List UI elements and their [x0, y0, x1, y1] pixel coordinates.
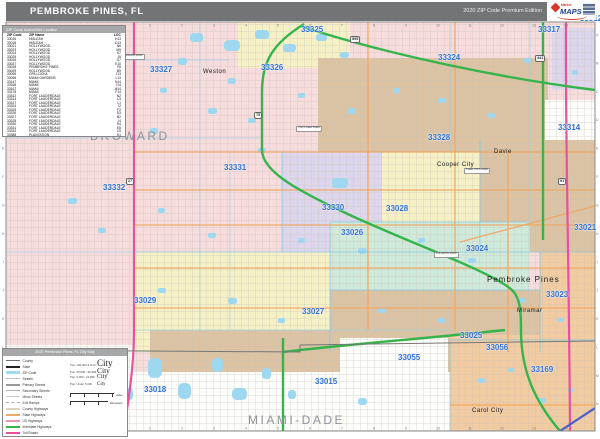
city-size-row: Pop. 25,000 - 99,999City	[70, 366, 125, 374]
lake	[278, 318, 285, 323]
lake	[68, 198, 77, 204]
zip-index-table: ZIP CodeZIP NameLOC33016HIALEAHH1333018H…	[3, 33, 125, 137]
lake	[283, 44, 296, 52]
legend-item-label: Streets	[23, 377, 33, 381]
lake	[178, 58, 187, 65]
lake	[158, 208, 165, 213]
legend-line-sample	[6, 414, 20, 416]
grid-tick: 8	[373, 427, 375, 431]
miles-label: miles	[116, 393, 123, 397]
grid-tick: 11	[468, 24, 472, 28]
lake	[190, 33, 203, 42]
lake	[178, 383, 191, 399]
legend-line-items: CountyStateZIP CodeStreetsPrimary Street…	[6, 358, 70, 437]
legend-item-label: Minor Streets	[23, 395, 43, 399]
grid-tick: 9	[405, 24, 407, 28]
population-range-label: Pop. 5,000 - 24,999	[70, 375, 97, 379]
legend-item-label: US Highways	[23, 419, 43, 423]
grid-tick: K	[2, 317, 5, 321]
city-sample-label: City	[97, 382, 106, 387]
grid-tick: G	[2, 203, 5, 207]
lake	[208, 108, 217, 114]
grid-tick: 1	[149, 24, 151, 28]
legend-item-label: Toll Roads	[23, 431, 38, 435]
grid-tick: D	[596, 118, 599, 122]
grid-tick: 12	[500, 427, 504, 431]
population-range-label: Pop. 100,000 & Over	[70, 363, 97, 367]
scale-miles: miles	[70, 391, 125, 398]
grid-tick: L	[596, 345, 598, 349]
zip-index-panel: ZIP Code Index/Grid Locator ZIP CodeZIP …	[2, 25, 126, 137]
grid-tick: 6	[309, 24, 311, 28]
grid-tick: I	[3, 260, 4, 264]
lake	[248, 118, 256, 123]
legend-item-label: Primary Streets	[23, 383, 46, 387]
grid-tick: 10	[436, 427, 440, 431]
population-range-label: Pop. 25,000 - 99,999	[70, 370, 97, 374]
grid-tick: 3	[213, 24, 215, 28]
grid-tick: F	[596, 175, 598, 179]
legend-item-label: State	[23, 365, 31, 369]
lake	[228, 298, 237, 304]
grid-tick: B	[596, 61, 599, 65]
grid-tick: 11	[468, 427, 472, 431]
lake	[358, 248, 367, 254]
lake	[488, 113, 495, 118]
km-label: kilometers	[110, 401, 123, 405]
legend-item-label: Exit Ramps	[23, 401, 40, 405]
legend-item-label: County	[23, 359, 33, 363]
header-bar: PEMBROKE PINES, FL 2020 ZIP Code Premium…	[6, 2, 547, 21]
lake	[224, 40, 240, 51]
miles-scalebar	[70, 393, 114, 397]
grid-tick: 10	[436, 24, 440, 28]
grid-tick: 8	[373, 24, 375, 28]
lake	[232, 388, 247, 400]
lake	[262, 368, 271, 379]
lake	[298, 93, 305, 98]
grid-tick: J	[596, 289, 598, 293]
page-title: PEMBROKE PINES, FL	[30, 2, 144, 21]
lake	[212, 358, 223, 372]
lake	[418, 238, 425, 243]
lake	[208, 233, 216, 238]
legend-panel: 2020 Pembroke Pines, FL City Map CountyS…	[2, 348, 128, 437]
legend-line-sample	[6, 396, 20, 397]
lake	[150, 128, 158, 134]
lake	[558, 318, 564, 322]
grid-tick: 13	[532, 427, 536, 431]
grid-tick: N	[596, 402, 599, 406]
zip-index-title: ZIP Code Index/Grid Locator	[3, 26, 125, 33]
grid-tick: 2	[181, 427, 183, 431]
grid-tick: J	[2, 289, 4, 293]
city-size-row: Pop. Under 5,000City	[70, 382, 125, 390]
grid-tick: E	[2, 147, 5, 151]
grid-tick: C	[596, 90, 599, 94]
grid-tick: H	[2, 232, 5, 236]
marketmaps-logo: Market MAPS	[549, 1, 596, 20]
legend-line-sample	[6, 426, 20, 429]
city-sample-label: City	[97, 374, 107, 380]
grid-tick: 5	[277, 427, 279, 431]
logo-mark-icon	[551, 3, 561, 13]
legend-line-sample	[6, 432, 20, 434]
grid-tick: 13	[532, 24, 536, 28]
legend-line-sample	[6, 390, 20, 391]
lake	[508, 368, 514, 372]
edition-label: 2020 ZIP Code Premium Edition	[463, 2, 542, 21]
grid-tick: 3	[213, 427, 215, 431]
lake	[438, 318, 445, 323]
lake	[358, 398, 367, 405]
legend-line-sample	[6, 371, 20, 374]
legend-city-sizes: Pop. 100,000 & OverCityPop. 25,000 - 99,…	[70, 358, 125, 437]
zip-index-row: 33388PLANTATIONK1	[3, 134, 125, 137]
grid-tick: A	[596, 33, 599, 37]
legend-item-label: State Highways	[23, 413, 46, 417]
km-scalebar	[70, 401, 108, 405]
lake	[468, 258, 476, 263]
population-range-label: Pop. Under 5,000	[70, 382, 97, 386]
lake	[332, 178, 348, 188]
scale-kilometers: kilometers	[70, 400, 125, 407]
grid-tick: E	[596, 147, 599, 151]
grid-tick: 5	[277, 24, 279, 28]
legend-item: Toll Roads	[6, 430, 70, 436]
legend-line-sample	[6, 408, 20, 410]
lake	[438, 98, 446, 103]
grid-tick: 14	[564, 24, 568, 28]
legend-line-sample	[6, 420, 20, 422]
legend-line-sample	[6, 378, 20, 379]
grid-tick: K	[596, 317, 599, 321]
lake	[393, 88, 400, 93]
map-poster: 11223344556677889910101111121213131414AA…	[0, 0, 600, 439]
legend-line-sample	[6, 384, 20, 386]
lake	[298, 238, 305, 243]
grid-tick: 14	[564, 427, 568, 431]
legend-line-sample	[6, 366, 20, 368]
grid-tick: 9	[405, 427, 407, 431]
grid-tick: 1	[149, 427, 151, 431]
legend-line-sample	[6, 402, 20, 403]
legend-item-label: Interstate Highways	[23, 425, 52, 429]
lake	[255, 30, 269, 39]
grid-tick: 7	[341, 24, 343, 28]
lake	[148, 358, 162, 378]
lake	[572, 70, 578, 75]
grid-tick: 4	[245, 427, 247, 431]
grid-tick: I	[597, 260, 598, 264]
logo-box-icon	[583, 3, 595, 15]
grid-tick: 2	[181, 24, 183, 28]
lake	[98, 228, 106, 233]
lake	[348, 108, 356, 114]
grid-tick: H	[596, 232, 599, 236]
lake	[288, 390, 296, 399]
city-size-row: Pop. 100,000 & OverCity	[70, 358, 125, 366]
grid-tick: 6	[309, 427, 311, 431]
legend-item-label: County Highways	[23, 407, 49, 411]
lake	[158, 288, 166, 293]
lake	[340, 52, 349, 58]
logo-swoosh-icon	[557, 15, 587, 20]
legend-item-label: Secondary Streets	[23, 389, 50, 393]
legend-item-label: ZIP Code	[23, 371, 37, 375]
grid-tick: 4	[245, 24, 247, 28]
lake	[378, 308, 386, 313]
lake	[160, 88, 167, 93]
grid-tick: F	[2, 175, 4, 179]
legend-line-sample	[6, 360, 20, 362]
city-size-row: Pop. 5,000 - 24,999City	[70, 374, 125, 382]
grid-tick: 7	[341, 427, 343, 431]
lake	[478, 378, 485, 383]
grid-tick: 12	[500, 24, 504, 28]
lake	[228, 78, 236, 84]
grid-tick: G	[596, 203, 599, 207]
grid-tick: M	[596, 374, 599, 378]
